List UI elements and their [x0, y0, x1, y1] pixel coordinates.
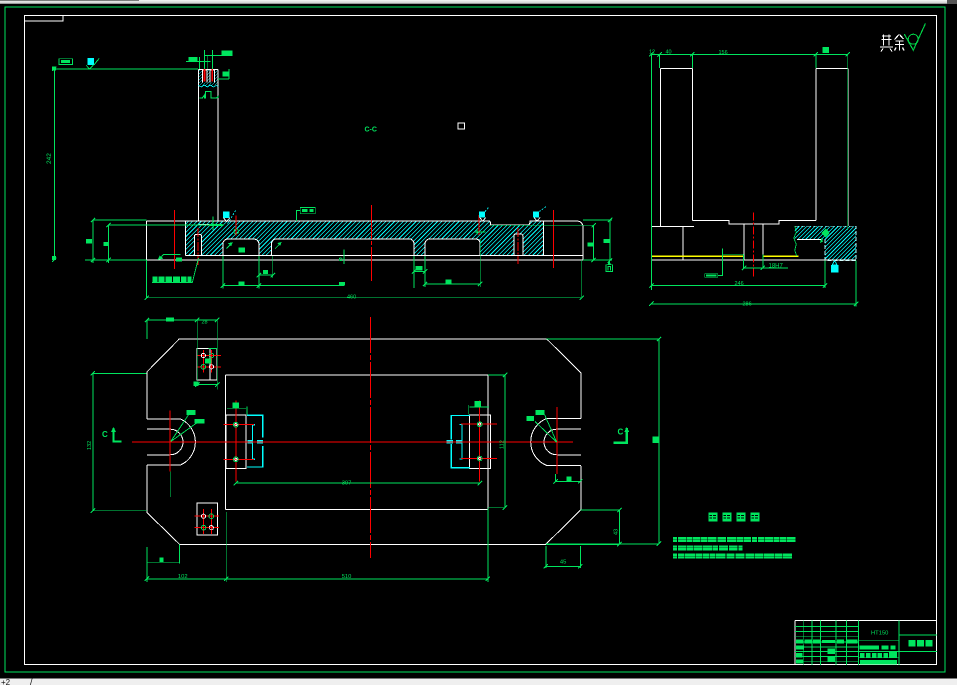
- svg-text:112: 112: [500, 440, 506, 449]
- svg-text:246: 246: [735, 281, 744, 287]
- svg-text:45: 45: [560, 560, 566, 566]
- svg-text:242: 242: [46, 153, 53, 164]
- svg-text:28: 28: [202, 320, 208, 326]
- svg-text:132: 132: [87, 441, 93, 450]
- svg-text:156: 156: [719, 50, 728, 56]
- svg-text:C: C: [618, 428, 624, 437]
- svg-text:510: 510: [342, 574, 352, 580]
- svg-text:43: 43: [614, 529, 620, 535]
- svg-text:C: C: [102, 430, 108, 439]
- svg-text:40: 40: [666, 49, 672, 55]
- svg-text:12: 12: [649, 50, 655, 56]
- svg-text:286: 286: [743, 301, 752, 307]
- svg-text:307: 307: [342, 481, 352, 487]
- svg-text:C-C: C-C: [365, 127, 377, 134]
- svg-text:HT150: HT150: [871, 630, 888, 636]
- svg-text:460: 460: [347, 294, 356, 300]
- svg-text:102: 102: [178, 574, 188, 580]
- svg-text:+2: +2: [1, 678, 11, 685]
- svg-text:18H7: 18H7: [769, 263, 784, 269]
